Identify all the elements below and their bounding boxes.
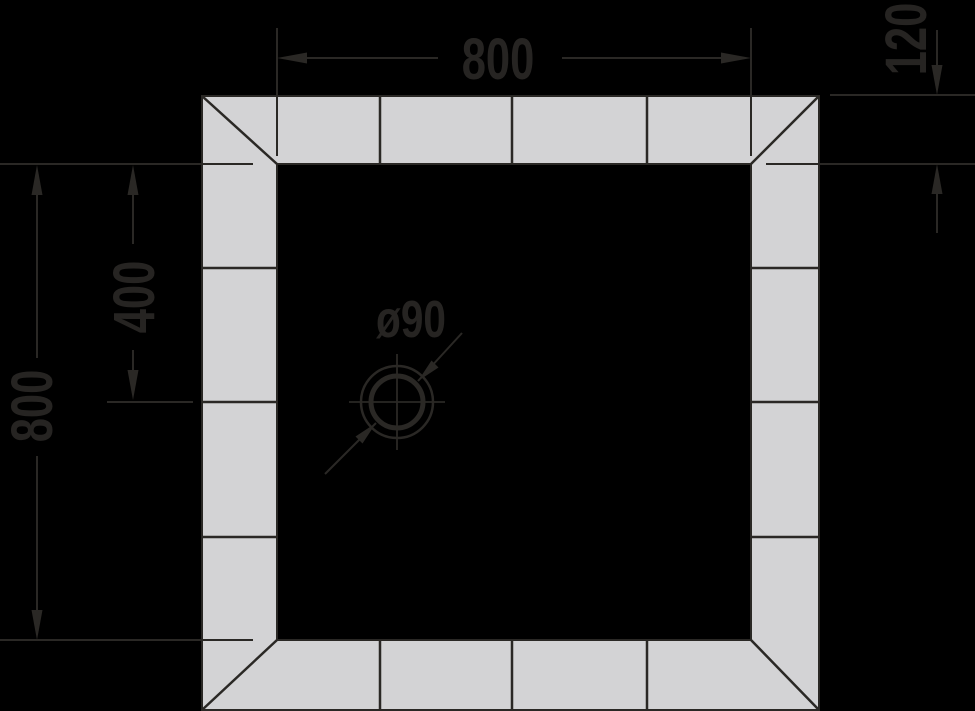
- shower-tray-plan-drawing: 800 800 400: [0, 0, 975, 711]
- arrowhead-up: [32, 165, 43, 195]
- drain-assembly: ø90: [325, 290, 462, 474]
- arrowhead-left: [277, 53, 307, 64]
- arrowhead-up: [932, 164, 943, 194]
- arrowhead-down: [128, 370, 139, 400]
- dim-label-border-width: 120: [874, 3, 938, 76]
- arrowhead-up: [128, 165, 139, 195]
- tray-frame-ring: [202, 96, 819, 710]
- technical-drawing-page: 800 800 400: [0, 0, 975, 711]
- drain-leader-lines: [325, 333, 462, 474]
- frame-miter-joints: [202, 96, 819, 710]
- arrowhead-down: [32, 610, 43, 640]
- dim-label-overall-height: 800: [0, 370, 64, 443]
- dim-label-drain-diameter: ø90: [376, 290, 446, 348]
- leader-arrowhead-upper: [418, 361, 439, 382]
- dim-label-drain-offset: 400: [102, 261, 166, 334]
- arrowhead-right: [721, 53, 751, 64]
- frame-segment-joints: [202, 96, 819, 710]
- dim-label-overall-width: 800: [462, 27, 535, 91]
- dimension-left-drain-offset: 400: [102, 165, 193, 402]
